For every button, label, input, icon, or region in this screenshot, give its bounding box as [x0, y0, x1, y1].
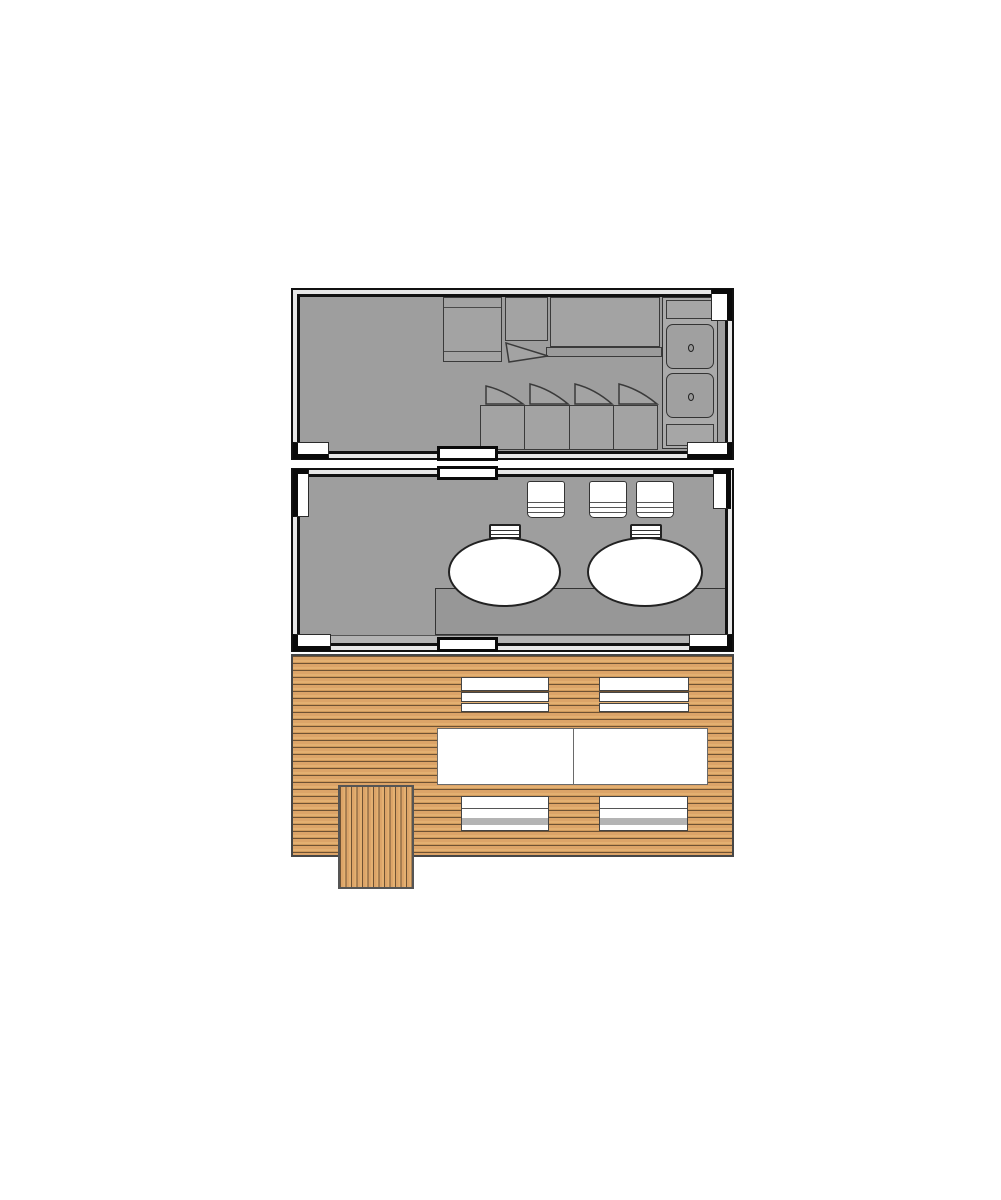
- chair-slat-line: [528, 512, 564, 513]
- door-opening-top-unit: [437, 446, 498, 461]
- bench-slat: [599, 692, 689, 702]
- bed-footboard: [546, 347, 662, 357]
- deck-bench-upper-left: [461, 677, 549, 713]
- platform-edge-strip: [300, 635, 725, 643]
- tub-step-line: [491, 530, 519, 531]
- deck-bench-lower-right: [599, 796, 688, 831]
- drain-icon: [688, 393, 694, 401]
- chair-slat-line: [590, 502, 626, 503]
- chair-slat-line: [528, 502, 564, 503]
- floor-plan-canvas: [0, 0, 1001, 1200]
- door-opening-middle-unit-top: [437, 466, 498, 480]
- tub-step-line: [632, 530, 660, 531]
- chair-slat-line: [637, 512, 673, 513]
- corner-fitting-icon: [293, 442, 329, 459]
- deck-chair-3: [636, 481, 674, 518]
- bench-gray-slat: [462, 818, 548, 825]
- bench-slat-line: [600, 808, 687, 809]
- double-bed: [550, 297, 660, 347]
- tub-step-line: [491, 534, 519, 535]
- chair-slat-line: [637, 507, 673, 508]
- deck-table-right: [573, 728, 708, 785]
- tub-step-line: [632, 534, 660, 535]
- bench-slat: [599, 677, 689, 691]
- chair-slat-line: [590, 512, 626, 513]
- corner-fitting-icon: [689, 634, 732, 651]
- corner-fitting-icon: [687, 442, 732, 459]
- deck-chair-1: [527, 481, 565, 518]
- bench-slat: [461, 677, 549, 691]
- sink-basin-1: [666, 324, 714, 369]
- folding-chair-2: [524, 405, 570, 450]
- corner-fitting-icon: [293, 469, 309, 517]
- deck-step-platform: [338, 785, 414, 889]
- corner-fitting-icon: [713, 469, 731, 509]
- chair-slat-line: [528, 507, 564, 508]
- dresser-shelf-line: [444, 307, 501, 308]
- chair-slat-line: [637, 502, 673, 503]
- bench-slat: [599, 703, 689, 712]
- folding-chair-3: [569, 405, 614, 450]
- bench-slat: [461, 692, 549, 702]
- sink-basin-2: [666, 373, 714, 418]
- chair-slat-line: [590, 507, 626, 508]
- bench-slat: [461, 703, 549, 712]
- deck-bench-lower-left: [461, 796, 549, 831]
- deck-table-left: [437, 728, 574, 785]
- soaking-tub-1: [448, 537, 561, 607]
- corner-fitting-icon: [293, 634, 331, 651]
- deck-bench-upper-right: [599, 677, 689, 713]
- drain-icon: [688, 344, 694, 352]
- soaking-tub-2: [587, 537, 703, 607]
- folding-chair-1: [480, 405, 525, 450]
- door-opening-middle-unit-bottom: [437, 637, 498, 652]
- dresser: [443, 297, 502, 362]
- folding-chair-4: [613, 405, 658, 450]
- counter-shelf-top: [666, 300, 714, 319]
- deck-chair-2: [589, 481, 627, 518]
- bench-gray-slat: [600, 818, 687, 825]
- wall-cabinet: [505, 297, 548, 341]
- corner-fitting-icon: [711, 289, 732, 321]
- dresser-shelf-line: [444, 351, 501, 352]
- bench-slat-line: [462, 808, 548, 809]
